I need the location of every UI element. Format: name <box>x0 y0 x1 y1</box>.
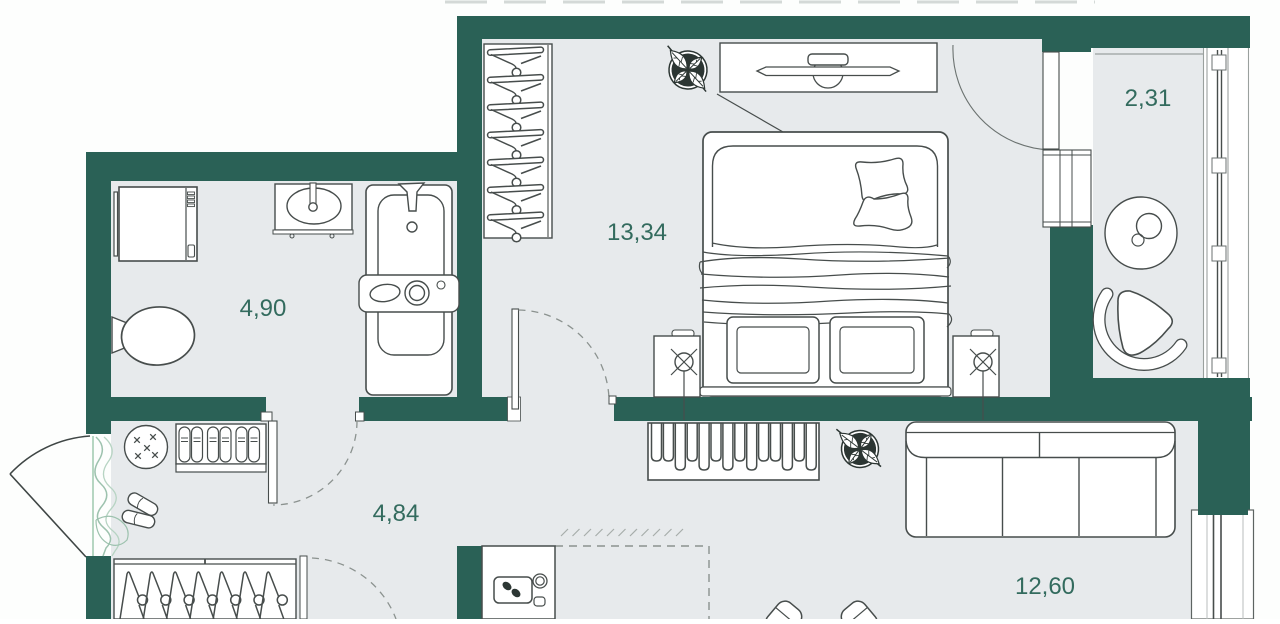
svg-text:4,84: 4,84 <box>373 500 420 527</box>
svg-text:13,34: 13,34 <box>607 219 667 246</box>
svg-text:12,60: 12,60 <box>1015 573 1075 600</box>
svg-text:4,90: 4,90 <box>240 295 287 322</box>
svg-text:2,31: 2,31 <box>1125 85 1172 112</box>
